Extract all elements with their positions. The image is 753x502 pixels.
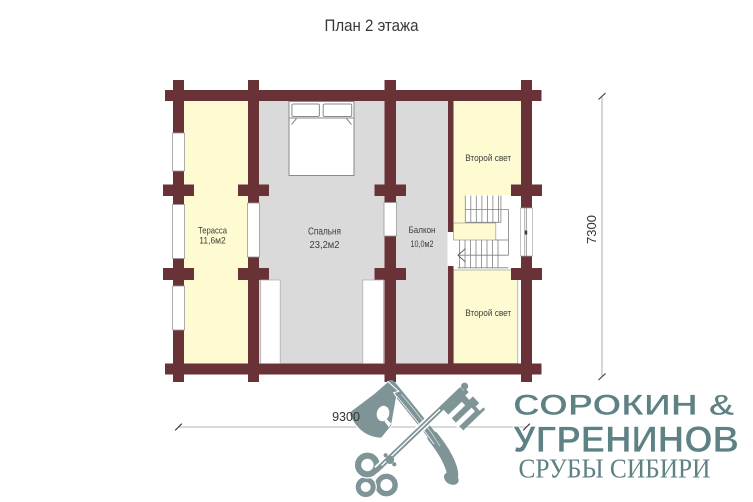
svg-text:11,6м2: 11,6м2 [199,236,226,247]
svg-text:План 2 этажа: План 2 этажа [325,17,420,35]
svg-text:Балкон: Балкон [409,225,436,236]
svg-text:7300: 7300 [584,215,599,244]
svg-text:СРУБЫ СИБИРИ: СРУБЫ СИБИРИ [519,453,711,484]
svg-text:9300: 9300 [332,410,360,424]
svg-text:Второй свет: Второй свет [465,308,512,319]
svg-text:СОРОКИН &: СОРОКИН & [513,389,735,422]
svg-text:10,0м2: 10,0м2 [411,239,434,250]
svg-text:Второй свет: Второй свет [465,153,512,164]
svg-text:Спальня: Спальня [308,227,341,238]
svg-text:23,2м2: 23,2м2 [310,240,340,251]
